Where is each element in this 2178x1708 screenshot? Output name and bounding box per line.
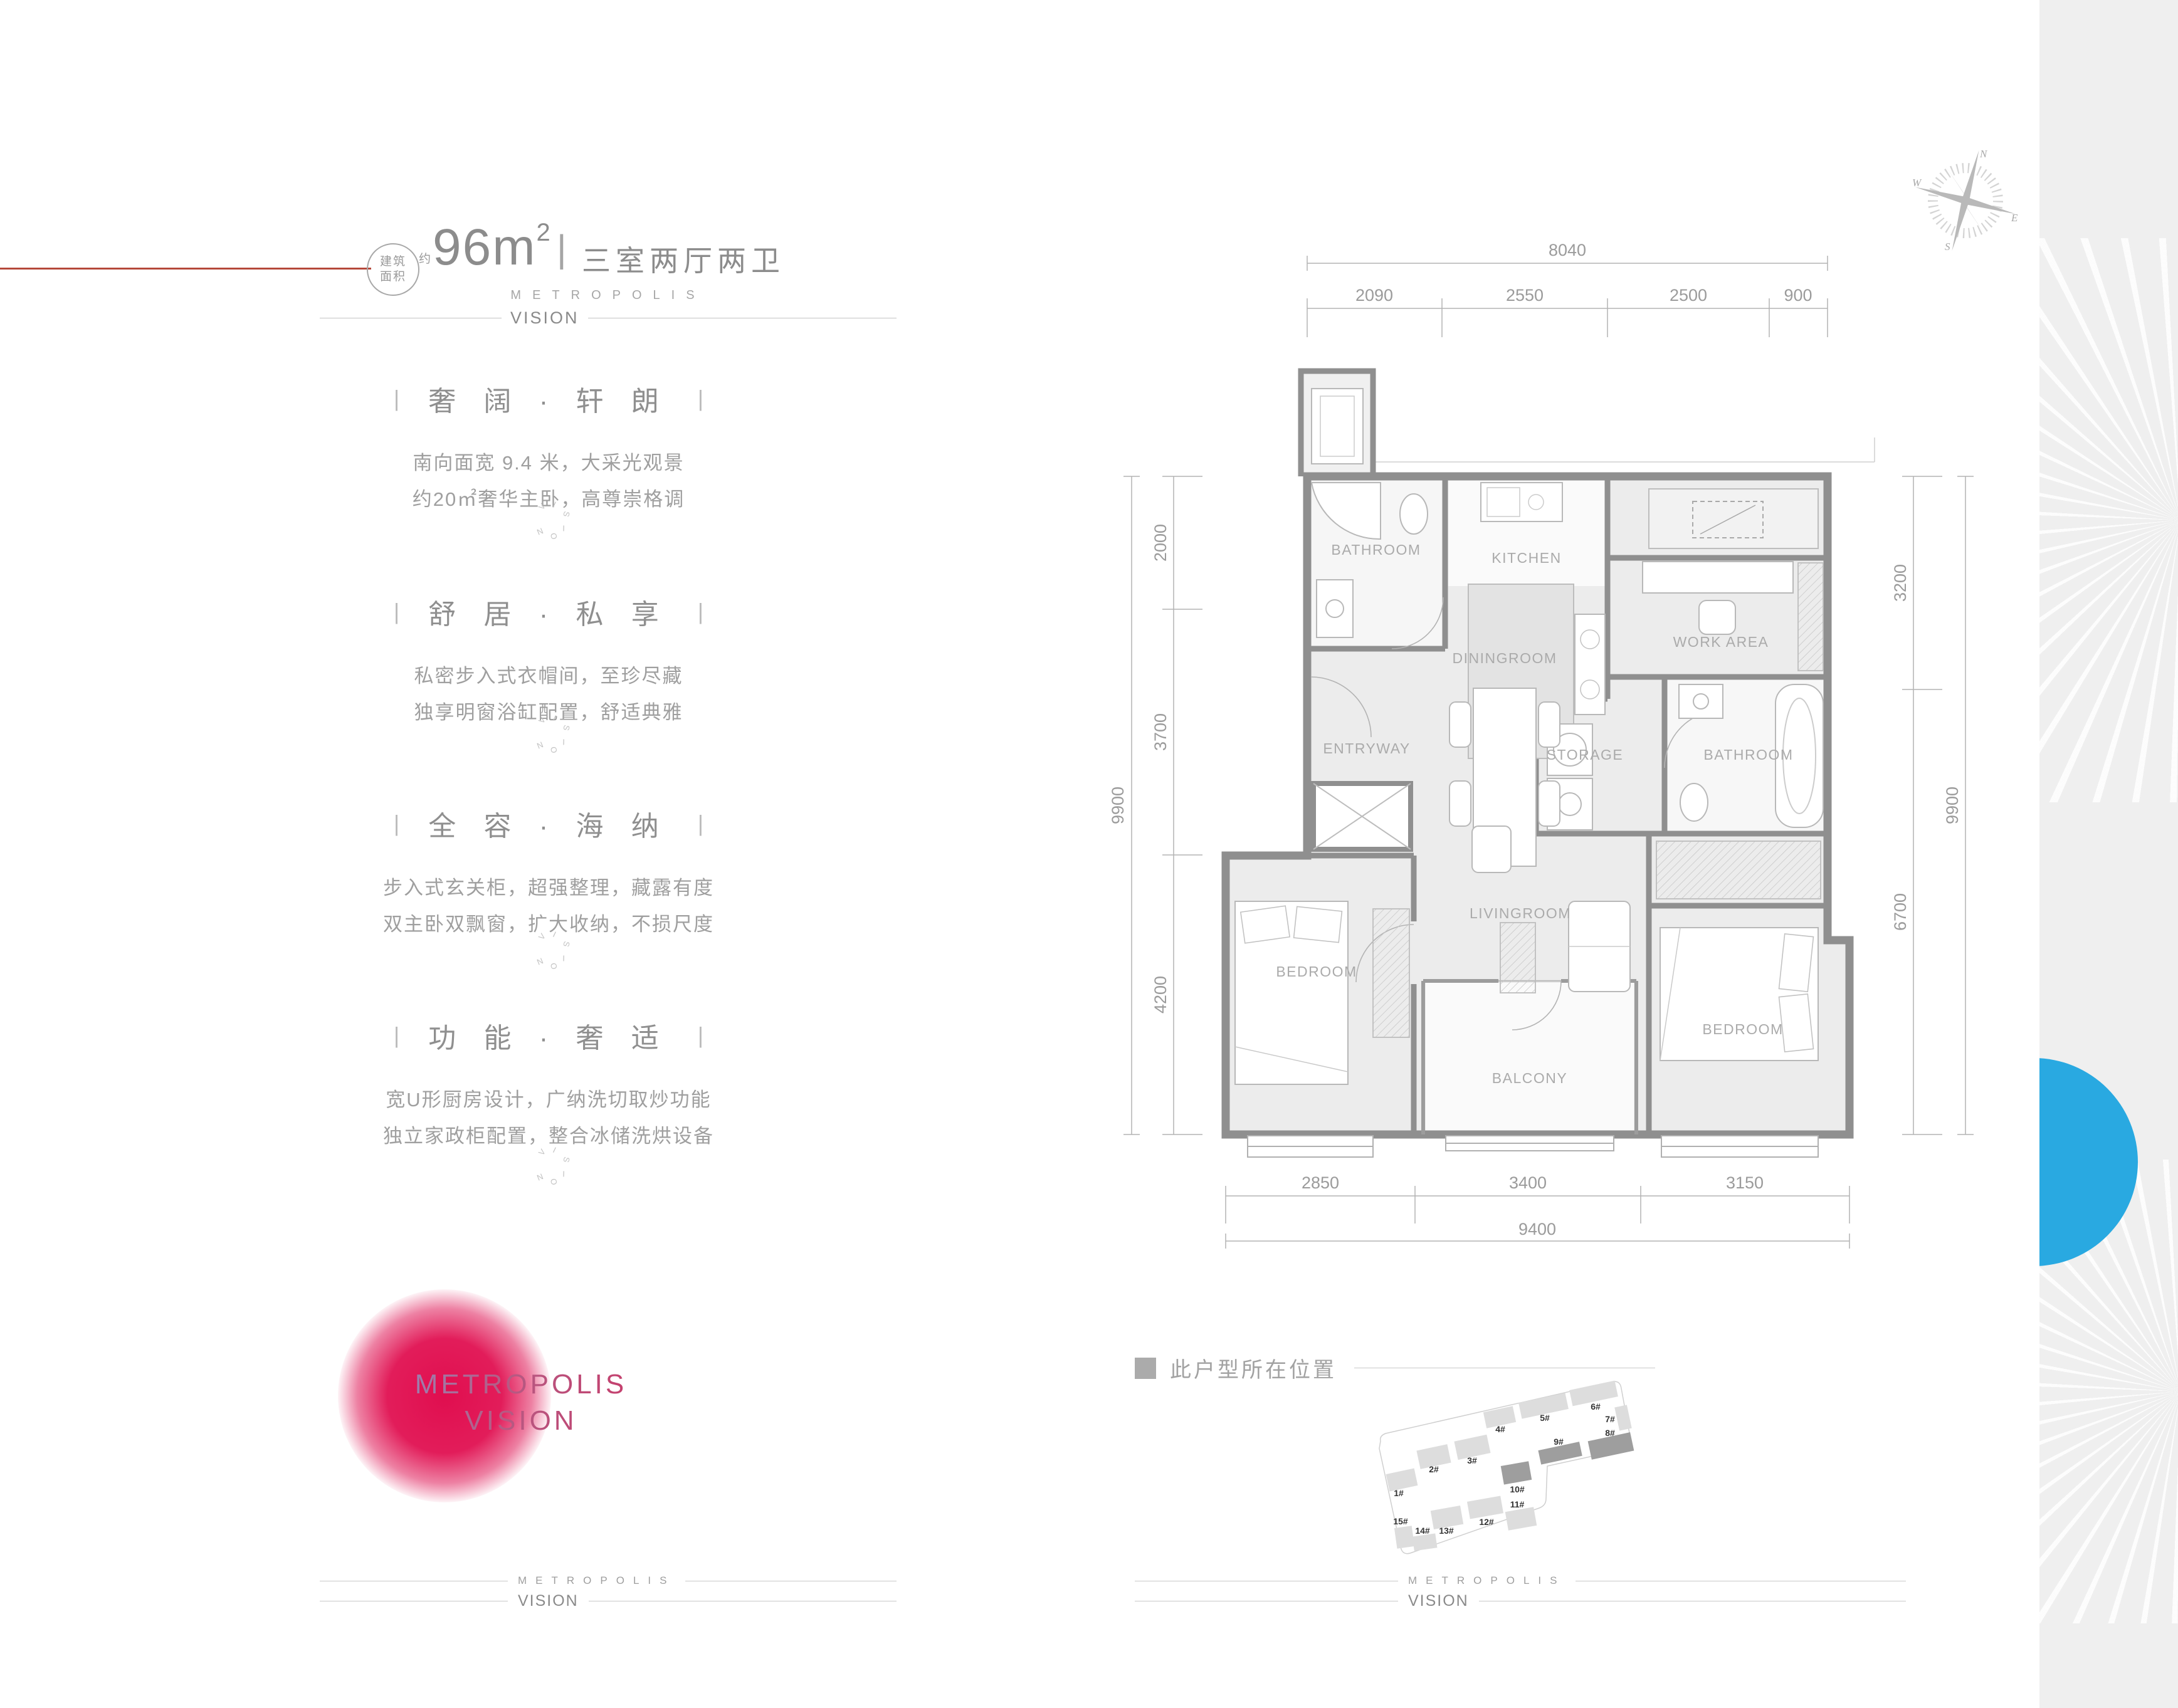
badge-line1: 建筑 [380, 254, 406, 270]
floorplan: BATHROOM KITCHEN WORK AREA ENTRYWAY DINI… [1097, 238, 2006, 1279]
compass-n: N [1979, 148, 1988, 160]
washer [1312, 389, 1363, 464]
room-label-bathroom2: BATHROOM [1703, 747, 1793, 763]
approx-label: 约 [419, 249, 431, 266]
brand-vision-row: VISION [320, 308, 897, 328]
wardrobe [1373, 909, 1409, 1037]
body-line: 步入式玄关柜，超强整理，藏露有度 [320, 870, 777, 906]
dim-bottom-seg2: 3400 [1509, 1173, 1547, 1192]
cabinet-band [1649, 489, 1818, 548]
section-2-heading: | 舒 居 · 私 享 | [320, 592, 777, 632]
dim-bottom-seg3: 3150 [1726, 1173, 1764, 1192]
accent-red-line [0, 268, 371, 270]
building-label: 6# [1591, 1402, 1601, 1412]
vision-circle-decor: VISION [529, 925, 569, 965]
heading-bar: | [698, 810, 703, 837]
ray-decoration-top [2039, 238, 2178, 802]
building-label: 7# [1605, 1414, 1615, 1424]
balcony-floor [1426, 983, 1634, 1132]
dim-bottom-total: 9400 [1518, 1220, 1556, 1239]
building-label: 9# [1554, 1437, 1564, 1447]
room-label-workarea: WORK AREA [1673, 634, 1769, 650]
divider-line [1135, 1581, 1398, 1581]
section-3: | 全 容 · 海 纳 | 步入式玄关柜，超强整理，藏露有度 双主卧双飘窗，扩大… [320, 804, 777, 943]
body-line: 南向面宽 9.4 米，大采光观景 [320, 445, 777, 481]
dim-right-total: 9900 [1943, 787, 1962, 824]
logo-wordmark: METROPOLIS VISION [339, 1366, 703, 1439]
divider-line [685, 1581, 897, 1581]
vision-circle-decor: VISION [529, 495, 569, 535]
room-label-livingroom: LIVINGROOM [1470, 905, 1571, 921]
tv-cabinet [1500, 923, 1535, 993]
building-label: 14# [1415, 1526, 1430, 1536]
bedroom-right-furniture [1660, 928, 1818, 1061]
building-label: 10# [1510, 1484, 1525, 1494]
heading-bar: | [394, 810, 399, 837]
section-4: | 功 能 · 奢 适 | 宽U形厨房设计，广纳洗切取炒功能 独立家政柜配置，整… [320, 1015, 777, 1155]
heading-bar: | [698, 1022, 703, 1049]
room-label-entryway: ENTRYWAY [1323, 740, 1410, 757]
divider-line [1479, 1601, 1906, 1601]
heading-text: 奢 阔 · 轩 朗 [428, 379, 669, 419]
dim-left-seg2: 3700 [1151, 713, 1170, 751]
dim-top-total: 8040 [1549, 241, 1586, 259]
layout-subtitle: 三室两厅两卫 [582, 238, 785, 280]
heading-bar: | [698, 385, 703, 412]
divider-line [589, 1601, 897, 1601]
badge-line2: 面积 [380, 270, 406, 285]
logo-line2: VISION [339, 1403, 703, 1439]
room-label-diningroom: DININGROOM [1452, 650, 1557, 666]
blue-half-circle [2039, 1057, 2146, 1267]
logo-line1: METROPOLIS [339, 1366, 703, 1403]
divider-line [1135, 1601, 1398, 1601]
dim-left-total: 9900 [1108, 787, 1127, 824]
heading-text: 舒 居 · 私 享 [428, 592, 669, 632]
heading-bar: | [394, 385, 399, 412]
area-value: 96m2 [433, 218, 552, 277]
compass-s: S [1945, 241, 1950, 253]
dim-bottom-seg1: 2850 [1302, 1173, 1339, 1192]
footer-brand-bottom: VISION [508, 1592, 589, 1610]
heading-bar: | [394, 599, 399, 625]
heading-text: 全 容 · 海 纳 [428, 804, 669, 844]
dim-right-seg1: 3200 [1891, 564, 1910, 602]
footer-brand-top: METROPOLIS [1398, 1574, 1576, 1587]
title-separator: | [557, 227, 567, 270]
room-label-bedroom-left: BEDROOM [1276, 963, 1357, 980]
brand-metropolis: METROPOLIS [320, 288, 897, 303]
section-4-heading: | 功 能 · 奢 适 | [320, 1015, 777, 1056]
dim-top-seg2: 2550 [1506, 286, 1544, 305]
building-label: 11# [1510, 1499, 1525, 1509]
vision-circle-decor: VISION [529, 709, 569, 749]
dim-left-seg1: 2000 [1151, 524, 1170, 562]
dim-top-seg3: 2500 [1670, 286, 1707, 305]
building-label: 5# [1540, 1413, 1550, 1423]
building-label: 8# [1605, 1428, 1615, 1438]
section-1-heading: | 奢 阔 · 轩 朗 | [320, 379, 777, 419]
room-label-balcony: BALCONY [1492, 1070, 1567, 1086]
building-label: 13# [1439, 1526, 1454, 1536]
compass: N E S W [1906, 141, 2025, 260]
room-label-kitchen: KITCHEN [1491, 550, 1561, 566]
building-label: 15# [1393, 1516, 1408, 1526]
area-exponent: 2 [537, 219, 552, 246]
compass-e: E [2011, 212, 2018, 224]
body-line: 宽U形厨房设计，广纳洗切取炒功能 [320, 1082, 777, 1118]
vision-circle-decor: VISION [529, 1141, 569, 1181]
divider-line [320, 1581, 508, 1581]
heading-bar: | [698, 599, 703, 625]
building-label: 2# [1429, 1464, 1439, 1474]
walkin-closet [1656, 841, 1821, 899]
dim-left-seg3: 4200 [1151, 976, 1170, 1014]
divider-line [320, 1601, 508, 1601]
context-line [1373, 437, 1875, 462]
dim-right-seg2: 6700 [1891, 893, 1910, 931]
body-line: 私密步入式衣帽间，至珍尽藏 [320, 658, 777, 694]
brand-vision: VISION [502, 308, 588, 328]
divider-line [1576, 1581, 1906, 1581]
footer-brand-top: METROPOLIS [508, 1574, 685, 1587]
legend-square-icon [1135, 1358, 1156, 1379]
footer-left: METROPOLIS VISION [320, 1574, 897, 1610]
legend-label: 此户型所在位置 [1170, 1353, 1337, 1383]
building-label: 1# [1394, 1488, 1404, 1498]
bay-windows [1248, 1136, 1818, 1157]
heading-text: 功 能 · 奢 适 [428, 1015, 669, 1056]
legend-line [1354, 1368, 1655, 1368]
entry-closet [1313, 783, 1411, 849]
dim-top-seg1: 2090 [1355, 286, 1393, 305]
heading-bar: | [394, 1022, 399, 1049]
room-label-storage: STORAGE [1547, 747, 1624, 763]
footer-right: METROPOLIS VISION [1135, 1574, 1906, 1610]
divider-line [320, 318, 502, 318]
compass-w: W [1912, 177, 1922, 189]
room-label-bathroom1: BATHROOM [1331, 542, 1421, 558]
building-label: 4# [1495, 1424, 1505, 1434]
siteplan: 1# 2# 3# 4# 5# 6# 7# 8# 9# 10# 11# 12# 1… [1367, 1376, 1680, 1576]
armchair [1472, 826, 1511, 872]
section-3-heading: | 全 容 · 海 纳 | [320, 804, 777, 844]
building-label: 12# [1479, 1517, 1494, 1527]
divider-line [588, 318, 897, 318]
room-label-bedroom-right: BEDROOM [1702, 1021, 1783, 1037]
footer-brand-bottom: VISION [1398, 1592, 1479, 1610]
dim-top-seg4: 900 [1784, 286, 1812, 305]
building-label: 3# [1467, 1455, 1477, 1465]
compass-star [1906, 141, 2025, 260]
